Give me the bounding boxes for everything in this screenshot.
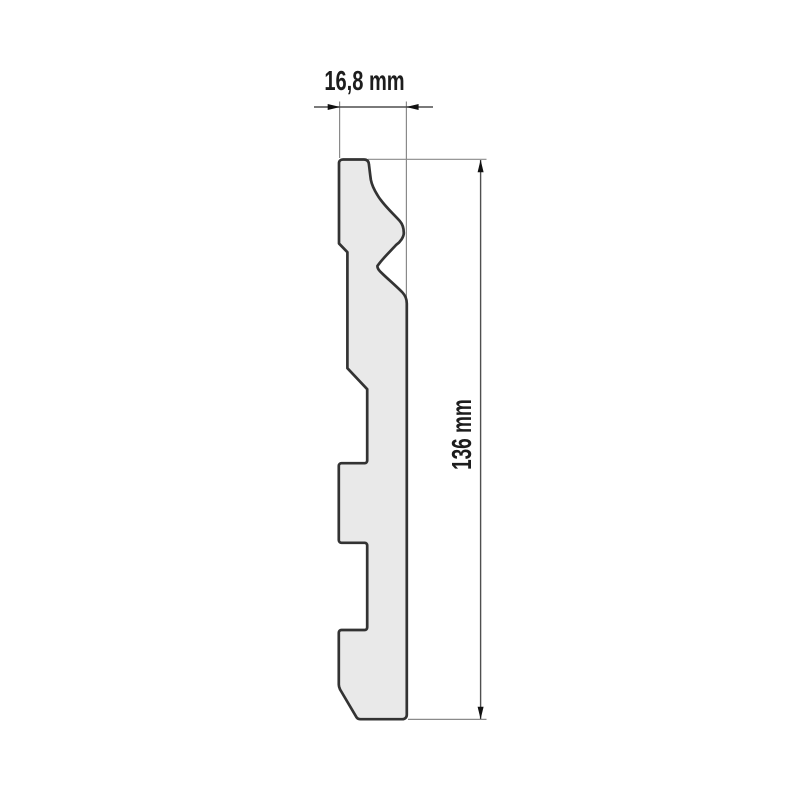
svg-text:136 mm: 136 mm — [448, 399, 478, 470]
svg-text:16,8 mm: 16,8 mm — [324, 66, 404, 97]
